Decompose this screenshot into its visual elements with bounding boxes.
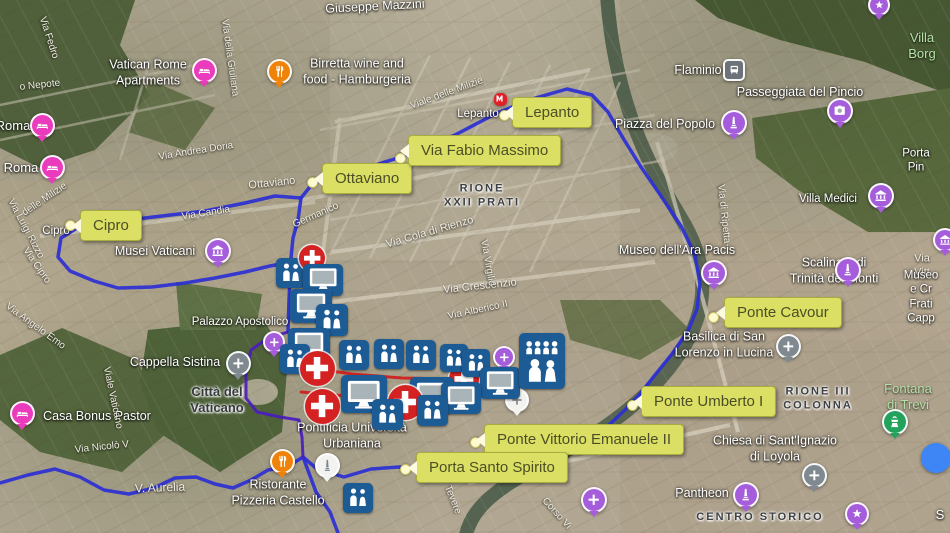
callout-porta-santo-spirito[interactable]: Porta Santo Spirito — [416, 452, 568, 483]
church-icon[interactable] — [776, 334, 801, 359]
label-birretta: Birretta wine and food - Hamburgeria — [303, 56, 411, 87]
hotel-icon[interactable] — [40, 155, 65, 180]
label-museo-frati-cappuccini: Museo e Cr Frati Capp — [904, 268, 939, 326]
crowd-icon[interactable] — [374, 339, 404, 369]
label-casa-bonus-pastor: Casa Bonus Pastor — [43, 409, 151, 425]
callout-tail — [408, 461, 417, 475]
street-viale-delle-milizie: Viale delle Milizie — [409, 75, 485, 113]
callout-label: Ponte Umberto I — [654, 393, 763, 410]
label-scalinata: Scalinata di Trinità dei Monti — [790, 255, 878, 286]
street-via-della-giuliana: Via della Giuliana — [217, 19, 240, 98]
first-aid-icon[interactable] — [305, 389, 340, 424]
train-station-icon[interactable] — [723, 59, 745, 81]
label-citta-del-vaticano: Città del Vaticano — [190, 384, 243, 417]
label-museo-ara-pacis: Museo dell'Ara Pacis — [619, 243, 735, 259]
museum-icon[interactable] — [933, 228, 950, 252]
callout-ponte-umberto-i[interactable]: Ponte Umberto I — [641, 386, 776, 417]
label-palazzo-apostolico: Palazzo Apostolico — [192, 315, 289, 329]
first-aid-icon[interactable] — [300, 351, 335, 386]
crowd-icon[interactable] — [339, 340, 369, 370]
screen-icon[interactable] — [480, 367, 520, 399]
label-ottaviano-street: Ottaviano — [248, 175, 296, 194]
label-villa-medici: Villa Medici — [799, 192, 857, 206]
label-roma-hotel-2: Roma — [4, 160, 39, 176]
label-via-vittorio-veneto: Via Vitt — [908, 252, 936, 280]
label-chiesa-sant-ignazio: Chiesa di Sant'Ignazio di Loyola — [713, 433, 837, 464]
callout-tail — [476, 433, 485, 447]
label-musei-vaticani: Musei Vaticani — [115, 244, 195, 260]
street-via-fedro: Via Fedro — [35, 16, 60, 61]
team-icon[interactable] — [519, 333, 565, 389]
street-via-nicolo-v: Via Nicolò V — [74, 439, 129, 457]
fountain-icon[interactable] — [882, 409, 908, 435]
hotel-icon[interactable] — [192, 58, 217, 83]
street-via-germanico: Germanico — [291, 200, 341, 231]
museum-icon[interactable] — [868, 183, 894, 209]
street-delle-milizie-2: delle Milizie — [20, 180, 70, 219]
label-cappella-sistina: Cappella Sistina — [130, 355, 220, 371]
callout-cipro[interactable]: Cipro — [80, 210, 142, 241]
label-rione-colonna: RIONE III COLONNA — [783, 385, 853, 413]
church-icon[interactable] — [581, 487, 607, 513]
label-centro-storico: CENTRO STORICO — [696, 511, 823, 525]
church-icon[interactable] — [802, 463, 827, 488]
callout-ponte-vittorio-emanuele-ii[interactable]: Ponte Vittorio Emanuele II — [484, 424, 684, 455]
callout-label: Ponte Vittorio Emanuele II — [497, 431, 671, 448]
callout-label: Cipro — [93, 217, 129, 234]
street-via-candia: Via Candia — [181, 204, 231, 224]
callout-label: Ottaviano — [335, 170, 399, 187]
callout-tail — [72, 219, 81, 233]
attraction-icon[interactable] — [845, 502, 869, 526]
street-tevere: Tevere — [441, 484, 464, 517]
camera-icon[interactable] — [827, 98, 853, 124]
callout-ponte-cavour[interactable]: Ponte Cavour — [724, 297, 842, 328]
label-rione-prati: RIONE XXII PRATI — [444, 182, 520, 210]
monument-icon[interactable] — [835, 257, 861, 283]
label-roma-hotel-1: Roma — [0, 118, 30, 134]
street-via-angelo-emo: Via Angelo Emo — [3, 301, 68, 353]
museum-icon[interactable] — [701, 260, 727, 286]
location-dot-icon[interactable] — [921, 443, 950, 473]
label-ristorante-pizzeria-castello: Ristorante Pizzeria Castello — [231, 477, 324, 508]
church-icon[interactable] — [226, 351, 251, 376]
label-giuseppe-mazzini: Giuseppe Mazzini — [325, 0, 425, 17]
street-via-di-ripetta: Via di Ripetta — [714, 184, 733, 244]
street-via-crescenzio: Via Crescenzio — [443, 276, 518, 297]
crowd-icon[interactable] — [372, 399, 403, 430]
map-canvas[interactable]: Giuseppe MazziniVatican Rome ApartmentsB… — [0, 0, 950, 533]
street-via-alberico-ii: Via Alberico II — [447, 299, 509, 324]
street-via-luigi-rizzo: Via Luigi Rizzo — [4, 197, 46, 261]
label-piazza-del-popolo: Piazza del Popolo — [615, 117, 715, 133]
street-viale-vaticano: Viale Vaticano — [99, 366, 124, 430]
callout-via-fabio-massimo[interactable]: Via Fabio Massimo — [408, 135, 561, 166]
callout-lepanto[interactable]: Lepanto — [512, 97, 592, 128]
label-s-fragment: S — [936, 507, 945, 523]
label-flaminio: Flaminio — [674, 63, 721, 79]
callout-label: Via Fabio Massimo — [421, 142, 548, 159]
street-via-andrea-doria: Via Andrea Doria — [158, 140, 234, 164]
street-corso-vittorio: Corso Vi — [539, 496, 574, 533]
callout-tail — [716, 306, 725, 320]
callout-label: Lepanto — [525, 104, 579, 121]
street-via-cola-di-rienzo: Via Cola di Rienzo — [385, 214, 476, 252]
church-icon[interactable] — [493, 346, 515, 368]
callout-tail — [400, 144, 409, 158]
restaurant-icon[interactable] — [270, 449, 295, 474]
label-porta-pinciana: Porta Pin — [899, 147, 933, 176]
label-lepanto-station: Lepanto — [457, 107, 499, 121]
callout-label: Porta Santo Spirito — [429, 459, 555, 476]
monument-icon[interactable] — [733, 482, 759, 508]
street-via-virgilio: Via Virgilio — [477, 239, 497, 287]
hotel-icon[interactable] — [30, 113, 55, 138]
obelisk-icon[interactable] — [315, 453, 340, 478]
callout-tail — [314, 172, 323, 186]
street-nepote: o Nepote — [19, 78, 61, 95]
callout-tail — [504, 106, 513, 120]
crowd-icon[interactable] — [406, 340, 436, 370]
label-vatican-rome-apartments: Vatican Rome Apartments — [109, 57, 187, 88]
callout-ottaviano[interactable]: Ottaviano — [322, 163, 412, 194]
label-villa-borghese: Villa Borg — [908, 30, 936, 63]
museum-icon[interactable] — [205, 238, 231, 264]
monument-icon[interactable] — [721, 110, 747, 136]
callout-label: Ponte Cavour — [737, 304, 829, 321]
callout-tail — [633, 395, 642, 409]
restaurant-icon[interactable] — [267, 59, 292, 84]
crowd-icon[interactable] — [417, 395, 448, 426]
street-via-aurelia: V. Aurelia — [135, 480, 186, 497]
attraction-icon[interactable] — [868, 0, 890, 16]
crowd-icon[interactable] — [343, 483, 373, 513]
metro-icon[interactable] — [494, 93, 507, 106]
marker-overlay: Giuseppe MazziniVatican Rome ApartmentsB… — [0, 0, 950, 533]
street-via-cipro: Via Cipro — [19, 246, 53, 287]
label-basilica-san-lorenzo: Basilica di San Lorenzo in Lucina — [675, 329, 774, 360]
label-pantheon: Pantheon — [675, 486, 729, 502]
hotel-icon[interactable] — [10, 401, 35, 426]
